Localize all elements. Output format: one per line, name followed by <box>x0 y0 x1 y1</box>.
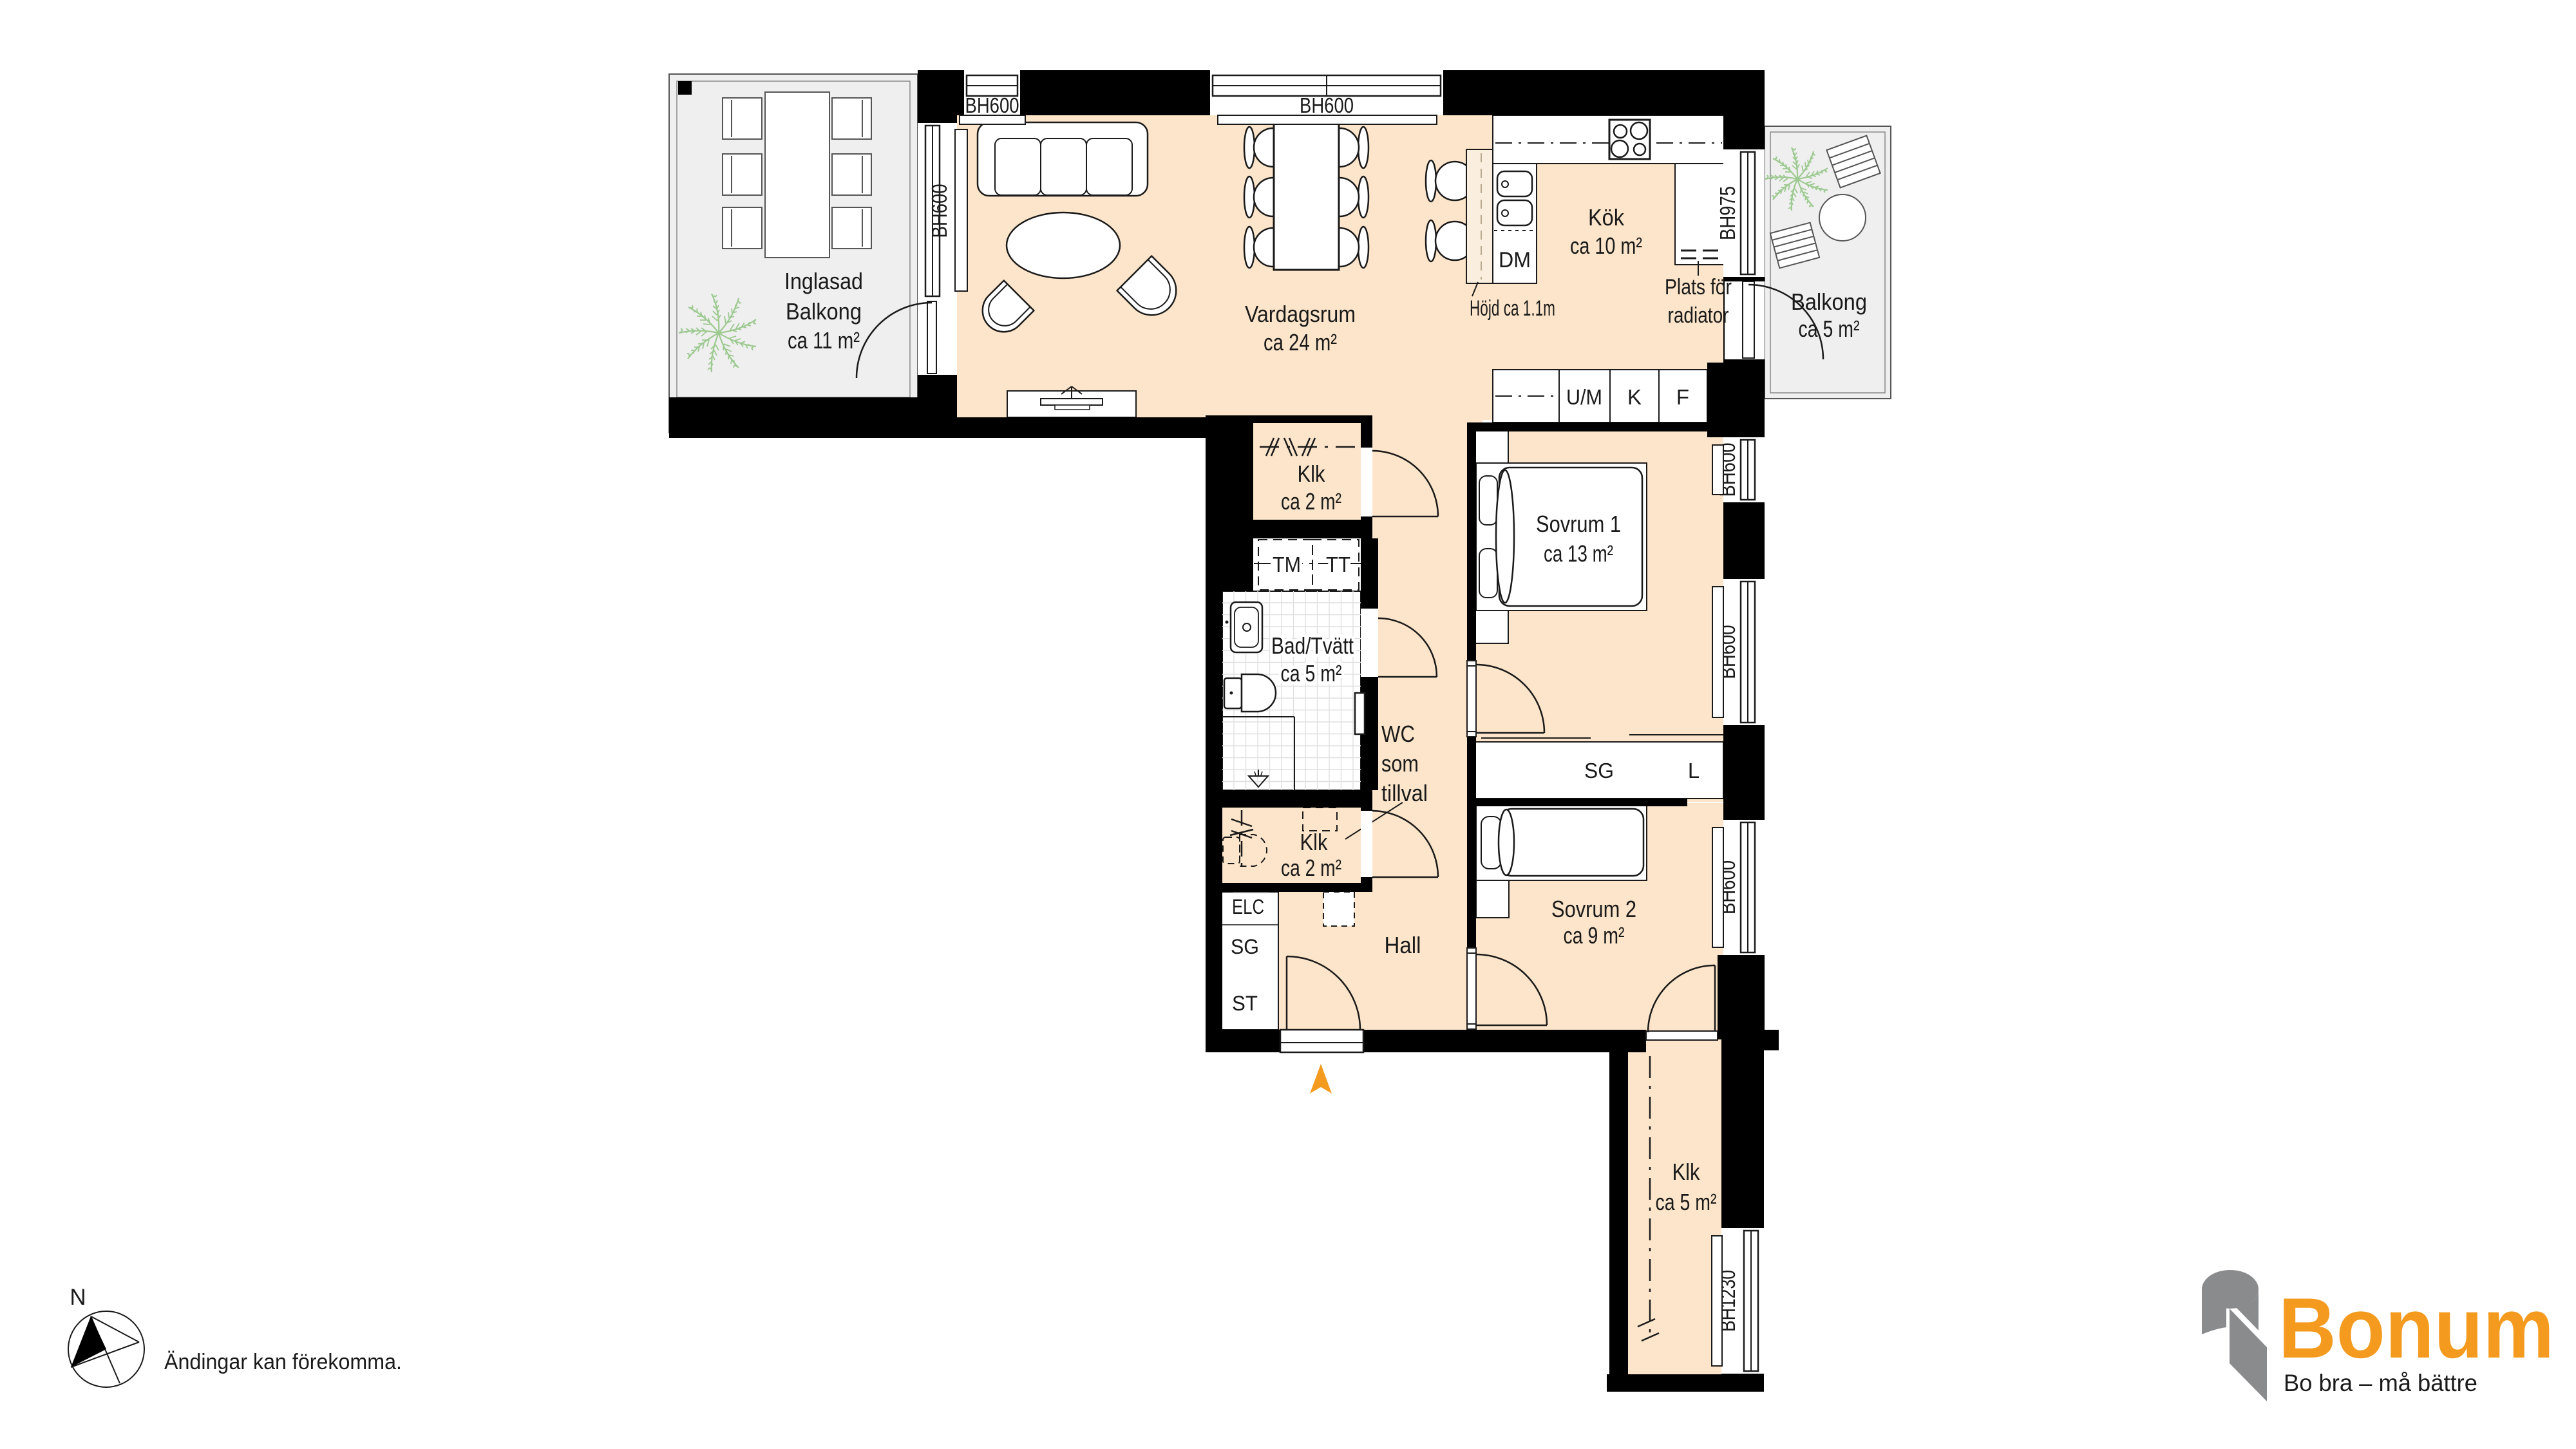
svg-text:ST: ST <box>1232 992 1258 1015</box>
svg-text:K: K <box>1627 385 1642 409</box>
svg-text:N: N <box>70 1285 86 1310</box>
svg-text:Ändingar kan förekomma.: Ändingar kan förekomma. <box>164 1350 402 1374</box>
svg-text:SG: SG <box>1584 759 1614 782</box>
svg-text:BH600: BH600 <box>927 184 951 238</box>
svg-text:Balkong: Balkong <box>1791 289 1867 315</box>
svg-text:Klk: Klk <box>1298 460 1326 487</box>
svg-text:DM: DM <box>1499 248 1531 272</box>
svg-text:L: L <box>1688 759 1700 782</box>
svg-text:Balkong: Balkong <box>786 298 862 325</box>
svg-text:ca 2 m²: ca 2 m² <box>1281 488 1341 515</box>
svg-text:tillval: tillval <box>1381 780 1428 806</box>
svg-text:Hall: Hall <box>1385 932 1421 958</box>
svg-text:ca 2 m²: ca 2 m² <box>1281 855 1341 881</box>
svg-text:Bo bra – må bättre: Bo bra – må bättre <box>2284 1370 2477 1396</box>
svg-text:ca 10 m²: ca 10 m² <box>1570 232 1642 259</box>
svg-text:F: F <box>1676 385 1689 409</box>
svg-text:Bad/Tvätt: Bad/Tvätt <box>1271 632 1354 659</box>
svg-text:ca 11 m²: ca 11 m² <box>788 327 860 354</box>
svg-text:Sovrum 1: Sovrum 1 <box>1536 511 1621 537</box>
svg-text:BH975: BH975 <box>1716 186 1739 240</box>
svg-text:U/M: U/M <box>1566 385 1602 409</box>
svg-text:Bonum: Bonum <box>2278 1281 2554 1376</box>
svg-text:ca 5 m²: ca 5 m² <box>1656 1189 1717 1215</box>
svg-text:Vardagsrum: Vardagsrum <box>1245 301 1356 327</box>
svg-text:Sovrum 2: Sovrum 2 <box>1551 896 1636 922</box>
svg-text:Kök: Kök <box>1588 204 1625 231</box>
svg-text:SG: SG <box>1231 935 1259 958</box>
svg-text:Klk: Klk <box>1300 829 1329 855</box>
svg-text:Höjd ca 1.1m: Höjd ca 1.1m <box>1470 296 1555 321</box>
svg-text:som: som <box>1381 750 1419 777</box>
svg-text:BH600: BH600 <box>965 93 1019 117</box>
svg-text:ca 5 m²: ca 5 m² <box>1281 660 1342 687</box>
svg-text:ELC: ELC <box>1232 895 1264 918</box>
svg-text:TM: TM <box>1273 553 1301 576</box>
svg-text:Plats för: Plats för <box>1665 275 1732 299</box>
svg-text:WC: WC <box>1381 721 1415 747</box>
svg-text:Klk: Klk <box>1672 1159 1701 1185</box>
svg-text:ca 24 m²: ca 24 m² <box>1264 329 1337 355</box>
svg-text:ca 5 m²: ca 5 m² <box>1799 316 1860 342</box>
svg-text:TT: TT <box>1326 553 1350 576</box>
svg-text:radiator: radiator <box>1668 303 1729 328</box>
svg-text:BH600: BH600 <box>1300 93 1354 117</box>
svg-text:ca 9 m²: ca 9 m² <box>1564 922 1625 949</box>
svg-text:Inglasad: Inglasad <box>784 268 863 294</box>
svg-text:ca 13 m²: ca 13 m² <box>1544 540 1613 567</box>
